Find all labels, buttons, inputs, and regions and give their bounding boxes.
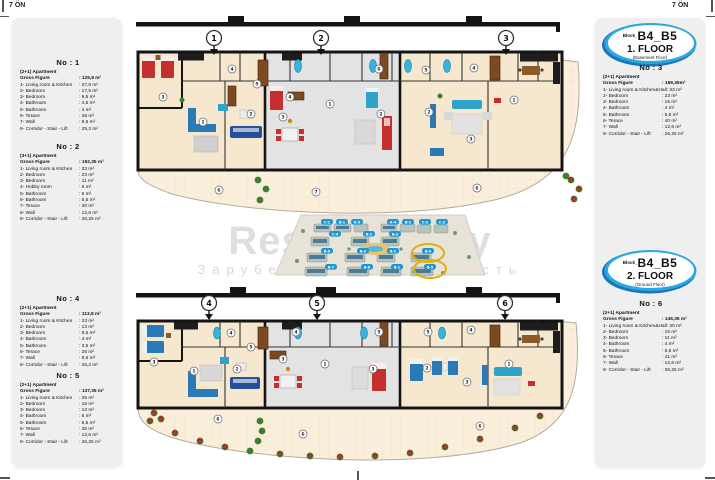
flower-dot [149,422,151,424]
flower-dot [578,186,580,188]
flower-dot [151,419,153,421]
apartment-title: No : 5 [20,371,116,380]
room-number: 5 [426,330,429,336]
flower-dot [409,454,411,456]
block-label: B-1 [339,220,346,224]
flower-dot [444,448,446,450]
block-label: A-5 [354,220,361,224]
room-number: 2 [425,366,428,372]
svg-text:5: 5 [314,299,320,308]
badge-floor-sub: (Ground Floor) [601,283,699,288]
spec-rows: 1- Living room & Kitchen: 23 m²2- Bedroo… [20,319,116,369]
badge-floor-label: 2. FLOOR [601,272,699,282]
spec-value: : 25,2 m² [79,127,116,133]
flower-dot [153,410,155,412]
svg-text:6: 6 [502,299,508,308]
room-number: 3 [161,95,164,101]
flower-dot [575,197,577,199]
room-number: 5 [377,330,380,336]
room-number: 1 [192,369,195,375]
spec-label: 9- Corridor - Stair - Lift [20,217,79,223]
spec-label: 8- Corridor - Stair - Lift [20,363,79,369]
spec-value: : 26,25 m² [662,132,699,138]
spec-label: 8- Corridor - Stair - Lift [603,132,662,138]
room-number: 1 [328,102,331,108]
room-number: 2 [379,112,382,118]
flower-dot [339,454,341,456]
flower-dot [514,425,516,427]
crop-mark-top-left [2,0,4,12]
apartment-title: No : 3 [603,63,699,72]
flower-dot [309,457,311,459]
flower-dot [155,411,157,413]
block-label: B-3 [392,232,399,236]
crop-mark-top-right [711,0,713,12]
flower-dot [446,445,448,447]
apartment-spec-2: No : 2 (3+1) Apartment Gross Figure : 15… [20,142,116,223]
block-label: B-5 [427,265,434,269]
flower-dot [309,453,311,455]
boundary-wall [136,16,560,32]
spec-rows: 1- Living room & Kitchen&Hall: 33 m²2- B… [603,88,699,138]
badge-block-label: Block_ [623,33,638,38]
floor-plan-basement: 1 2 3 312454312676542316 [130,8,590,220]
block-label: B-4 [425,249,432,253]
room-number: 1 [507,362,510,368]
floorplan-sheet: { "page": { "corner_left": "7 ÖN", "corn… [0,0,715,480]
entry-badge-6: 6 [498,296,513,321]
spec-rows: 1- Living room & Kitchen: 25 m²2- Bedroo… [20,396,116,446]
block-label: C-4 [332,232,339,236]
spec-rows: 1- Living room & Kitchen: 33 m²2- Bedroo… [20,167,116,224]
apartment-spec-5: No : 5 (2+1) Apartment Gross Figure : 13… [20,371,116,446]
flower-dot [479,440,481,442]
room-number: 6 [377,67,380,73]
floor-plan-ground: 4 5 6 312454316655432316 [130,283,590,478]
flower-dot [570,181,572,183]
flower-dot [541,414,543,416]
flower-dot [573,196,575,198]
floor-badge-1: Block_B4_B5 1. FLOOR (Basement Floor) [601,21,699,67]
corner-label-left: 7 ÖN [9,2,25,9]
spec-row: 8- Corridor - Stair - Lift: 26,25 m² [603,132,699,138]
apartment-spec-3: No : 3 (2+1) Apartment Gross Figure : 15… [603,63,699,138]
spec-label: 8- Corridor - Stair - Lift [603,368,662,374]
flower-dot [444,444,446,446]
apartment-title: No : 6 [603,299,699,308]
badge-block-name: B4_B5 [637,29,677,43]
room-number: 5 [424,68,427,74]
green-bush [247,448,254,455]
room-number: 3 [371,367,374,373]
flower-dot [199,438,201,440]
room-number: 5 [255,82,258,88]
flower-dot [339,458,341,460]
block-label: C-1 [324,220,331,224]
apartment-spec-4: No : 4 (2+1) Apartment Gross Figure : 11… [20,294,116,369]
flower-dot [174,430,176,432]
room-number: 1 [512,98,515,104]
floor-badge-text: Block_B4_B5 1. FLOOR (Basement Floor) [601,28,699,61]
block-label: B-2 [405,220,412,224]
flower-dot [226,445,228,447]
flower-dot [176,431,178,433]
site-plan-overview: C-1B-1A-5A-4B-2C-2C-3C-4B-1B-3B-6B-3B-2B… [259,213,497,279]
entry-badge-5: 5 [310,296,325,321]
green-bush [263,186,270,193]
flower-dot [580,187,582,189]
flower-dot [516,426,518,428]
room-number: 6 [475,186,478,192]
flower-dot [479,436,481,438]
flower-dot [162,417,164,419]
room-number: 4 [469,328,472,334]
block-label: B-1 [394,265,401,269]
flower-dot [279,455,281,457]
svg-text:2: 2 [318,34,324,43]
badge-block-label: Block_ [623,260,638,265]
flower-dot [514,429,516,431]
flower-dot [174,434,176,436]
spec-row: 9- Corridor - Stair - Lift: 26,25 m² [20,217,116,223]
block-label: B-3 [360,249,367,253]
crop-mark-bottom-right [705,477,715,479]
apartment-spec-6: No : 6 (2+1) Apartment Gross Figure : 14… [603,299,699,374]
room-number: 4 [294,330,297,336]
room-number: 6 [217,188,220,194]
crop-mark-left-tick [0,16,9,17]
spec-row: 8- Corridor - Stair - Lift: 25,2 m² [20,363,116,369]
room-number: 2 [235,367,238,373]
corner-label-right: 7 ÖN [672,2,688,9]
right-spec-panel: Block_B4_B5 1. FLOOR (Basement Floor) No… [595,18,705,467]
room-number: 1 [323,362,326,368]
flower-dot [539,413,541,415]
room-number: 2 [249,112,252,118]
flower-dot [201,439,203,441]
green-bush [255,177,262,184]
room-number: 3 [469,137,472,143]
room-number: 3 [152,360,155,366]
badge-floor-sub: (Basement Floor) [601,56,699,61]
spec-row: 8- Corridor - Stair - Lift: 26,25 m² [603,368,699,374]
flower-dot [224,444,226,446]
room-number: 2 [427,110,430,116]
flower-dot [341,455,343,457]
svg-text:1: 1 [211,34,217,43]
svg-text:3: 3 [503,34,509,43]
room-number: 3 [281,115,284,121]
crop-mark-right-tick [706,16,715,17]
block-label: C-3 [439,220,446,224]
flower-dot [376,454,378,456]
apartment-title: No : 4 [20,294,116,303]
flower-dot [481,437,483,439]
flower-dot [153,414,155,416]
flower-dot [539,417,541,419]
left-spec-panel: No : 1 (2+1) Apartment Gross Figure : 12… [12,18,122,467]
room-number: 4 [472,66,475,72]
spec-value: : 26,25 m² [79,440,116,446]
flower-dot [279,451,281,453]
flower-dot [411,451,413,453]
green-bush [257,197,264,204]
spec-value: : 26,25 m² [79,217,116,223]
room-number: 3 [281,357,284,363]
svg-text:4: 4 [206,299,212,308]
block-label: B-6 [324,249,331,253]
green-bush [255,438,262,445]
room-number: 4 [288,95,291,101]
flower-dot [281,452,283,454]
spec-row: 8- Corridor - Stair - Lift: 26,25 m² [20,440,116,446]
spec-label: 8- Corridor - Stair - Lift [20,127,79,133]
floor-badge-2: Block_B4_B5 2. FLOOR (Ground Floor) [601,248,699,294]
apartment-title: No : 2 [20,142,116,151]
block-label: B-2 [390,249,397,253]
room-number: 6 [478,424,481,430]
flower-dot [374,457,376,459]
room-number: 5 [249,345,252,351]
apartment-spec-1: No : 1 (2+1) Apartment Gross Figure : 12… [20,58,116,133]
room-number: 4 [230,67,233,73]
room-number: 6 [301,432,304,438]
flower-dot [311,454,313,456]
block-label: A-4 [390,220,397,224]
flower-dot [570,177,572,179]
green-bush [259,428,266,435]
block-label: B-1 [366,232,373,236]
flower-dot [578,190,580,192]
spec-rows: 1- Living room & Kitchen: 27,5 m²2- Bedr… [20,83,116,133]
flower-dot [199,442,201,444]
block-label: B-7 [328,265,335,269]
badge-floor-label: 1. FLOOR [601,45,699,55]
room-number: 1 [201,120,204,126]
flower-dot [160,420,162,422]
spec-value: : 26,25 m² [662,368,699,374]
flower-dot [409,450,411,452]
apartment-title: No : 1 [20,58,116,67]
flower-dot [572,178,574,180]
spec-rows: 1- Living room & Kitchen&Hall: 30 m²2- B… [603,324,699,374]
room-number: 4 [229,331,232,337]
green-bush [257,418,264,425]
room-number: 7 [314,190,317,196]
flower-dot [224,448,226,450]
spec-value: : 25,2 m² [79,363,116,369]
block-label: C-2 [422,220,429,224]
spec-row: 8- Corridor - Stair - Lift: 25,2 m² [20,127,116,133]
badge-block-name: B4_B5 [637,256,677,270]
room-number: 6 [216,417,219,423]
flower-dot [374,453,376,455]
floor-badge-text: Block_B4_B5 2. FLOOR (Ground Floor) [601,255,699,288]
green-bush [563,173,570,180]
flower-dot [160,416,162,418]
crop-mark-bottom-left [0,477,10,479]
flower-dot [149,418,151,420]
entry-badge-4: 4 [202,296,217,321]
block-label: B-8 [364,265,371,269]
flower-dot [573,200,575,202]
room-number: 3 [465,380,468,386]
boundary-wall [136,287,560,303]
spec-label: 8- Corridor - Stair - Lift [20,440,79,446]
